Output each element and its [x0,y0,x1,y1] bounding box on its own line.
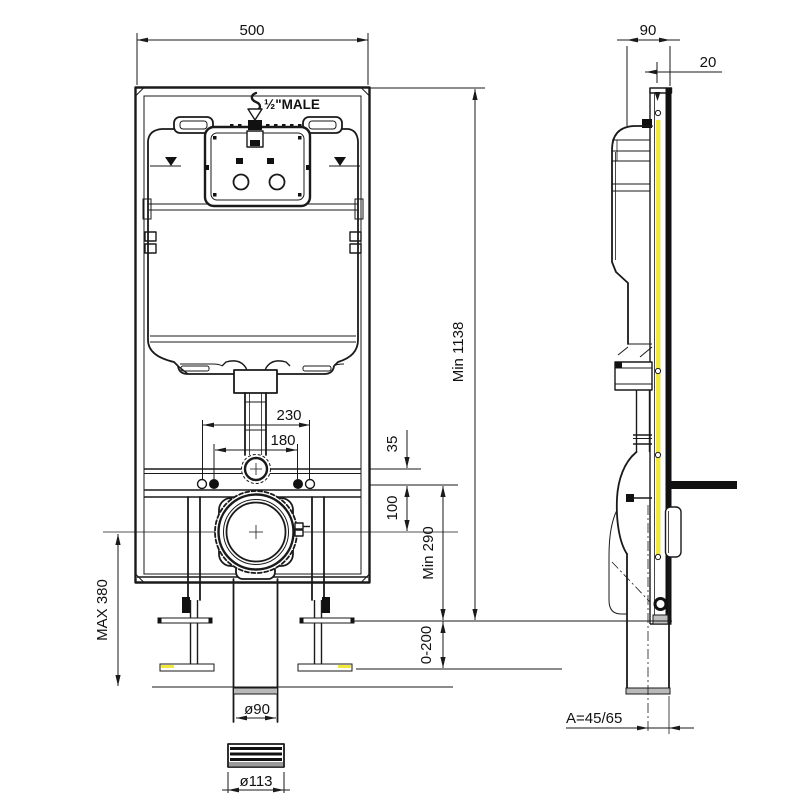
water-level-symbol-right [329,157,360,166]
support-leg-left [158,497,214,671]
cistern-frame-drawing: 500 ½"MALE 90 20 Min 1138 230 [0,0,800,800]
inlet-label: ½"MALE [264,97,320,112]
coupling-sleeve [228,744,284,767]
foot-accent-right [338,665,351,668]
dim-outlet-height: 100 [384,495,401,520]
dim-hole-spacing-inner: 180 [270,432,295,449]
dim-outlet-pipe-dia: ø90 [244,701,270,718]
foot-accent-left [161,665,174,668]
dim-coupling-dia: ø113 [239,773,272,790]
mounting-hole-outer-left [198,480,207,489]
wall-bracket-arm [671,481,737,489]
support-leg-right [298,497,354,671]
dim-frame-depth: 90 [640,22,657,39]
mounting-hole-inner-left [209,479,219,489]
bowl-fixing-tab [666,507,682,557]
dim-frame-min-height: Min 1138 [450,322,467,383]
dim-flush-offset: 35 [384,436,401,453]
mounting-hole-outer-right [306,480,315,489]
dim-leg-adjust: 0-200 [418,626,435,664]
front-view [103,88,458,768]
flush-valve-housing [234,370,277,393]
mounting-hole-inner-right [293,479,303,489]
dim-hole-spacing-outer: 230 [276,407,301,424]
seal-strip-accent [656,120,661,557]
tank-profile [612,126,652,344]
waste-pipe-cap [234,688,278,694]
elbow-profile [617,452,637,554]
water-inlet-symbol [248,93,262,130]
dim-frame-width: 500 [239,22,264,39]
dim-outlet-min-height: Min 290 [420,526,437,579]
water-level-symbol-left [150,157,181,166]
technical-drawing-canvas: 500 ½"MALE 90 20 Min 1138 230 [0,0,800,800]
dim-outlet-offset: A=45/65 [566,710,622,727]
dim-fixing-offset: 20 [700,54,717,71]
side-view [609,88,737,734]
fixing-ring [655,599,666,610]
dim-leg-max: MAX 380 [94,579,111,641]
